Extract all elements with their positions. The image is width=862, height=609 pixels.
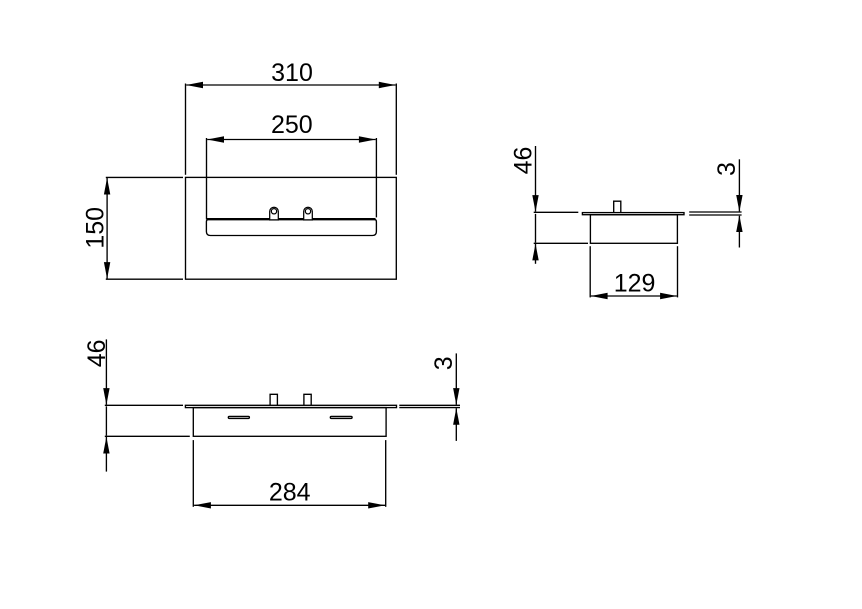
svg-text:46: 46 [83, 339, 111, 367]
svg-text:284: 284 [269, 478, 311, 506]
svg-text:150: 150 [82, 207, 110, 249]
svg-text:310: 310 [271, 59, 313, 87]
svg-text:250: 250 [271, 111, 313, 139]
svg-text:46: 46 [509, 147, 537, 175]
svg-text:3: 3 [430, 356, 458, 370]
svg-text:3: 3 [713, 162, 741, 176]
svg-text:129: 129 [614, 270, 656, 298]
